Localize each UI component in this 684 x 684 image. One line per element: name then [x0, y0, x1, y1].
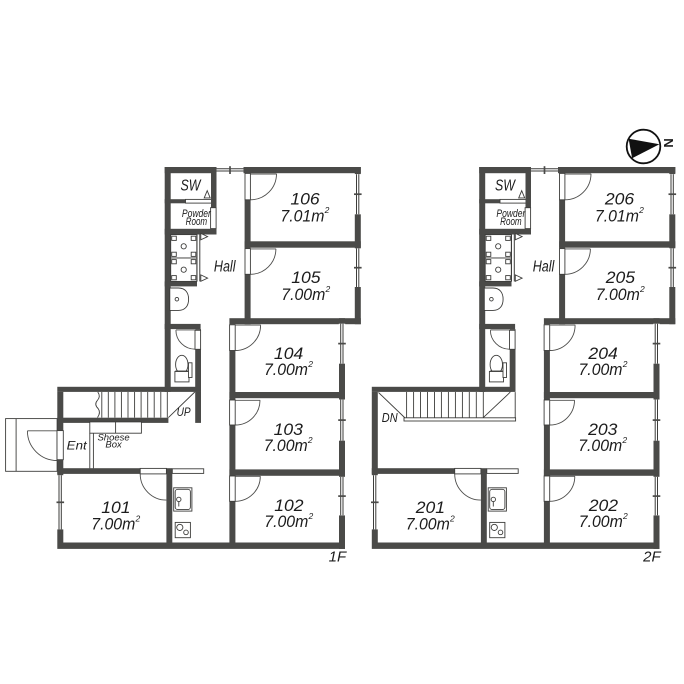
svg-text:7.00m: 7.00m	[264, 360, 308, 379]
svg-text:Box: Box	[105, 440, 123, 451]
svg-text:7.00m: 7.00m	[596, 285, 640, 304]
svg-text:2: 2	[135, 513, 141, 523]
svg-text:7.00m: 7.00m	[579, 512, 623, 531]
svg-text:2: 2	[449, 513, 455, 523]
svg-text:N: N	[661, 138, 676, 147]
svg-text:Hall: Hall	[214, 258, 236, 275]
svg-text:2: 2	[621, 435, 627, 445]
svg-text:2: 2	[622, 511, 628, 521]
svg-text:2F: 2F	[642, 548, 661, 565]
svg-text:7.00m: 7.00m	[578, 436, 622, 455]
svg-text:2: 2	[638, 205, 644, 215]
svg-text:2: 2	[307, 359, 313, 369]
svg-text:1F: 1F	[329, 548, 347, 565]
svg-text:SW: SW	[495, 178, 516, 195]
svg-text:SW: SW	[181, 178, 202, 195]
svg-text:7.00m: 7.00m	[264, 512, 308, 531]
svg-text:7.00m: 7.00m	[264, 436, 308, 455]
svg-text:7.00m: 7.00m	[281, 285, 325, 304]
svg-text:Ent: Ent	[67, 441, 88, 453]
svg-text:DN: DN	[382, 410, 398, 425]
svg-text:7.00m: 7.00m	[91, 515, 135, 534]
svg-text:Hall: Hall	[533, 258, 555, 275]
svg-text:2: 2	[639, 284, 645, 294]
svg-text:7.01m: 7.01m	[280, 206, 324, 225]
svg-text:UP: UP	[177, 407, 191, 419]
svg-text:Room: Room	[500, 216, 522, 228]
svg-text:2: 2	[308, 511, 314, 521]
svg-text:Room: Room	[186, 216, 208, 228]
svg-text:7.00m: 7.00m	[579, 360, 623, 379]
svg-text:7.01m: 7.01m	[595, 206, 639, 225]
svg-text:2: 2	[307, 435, 313, 445]
svg-text:2: 2	[622, 359, 628, 369]
svg-text:7.00m: 7.00m	[406, 515, 450, 534]
svg-text:2: 2	[325, 284, 331, 294]
svg-text:2: 2	[324, 205, 330, 215]
